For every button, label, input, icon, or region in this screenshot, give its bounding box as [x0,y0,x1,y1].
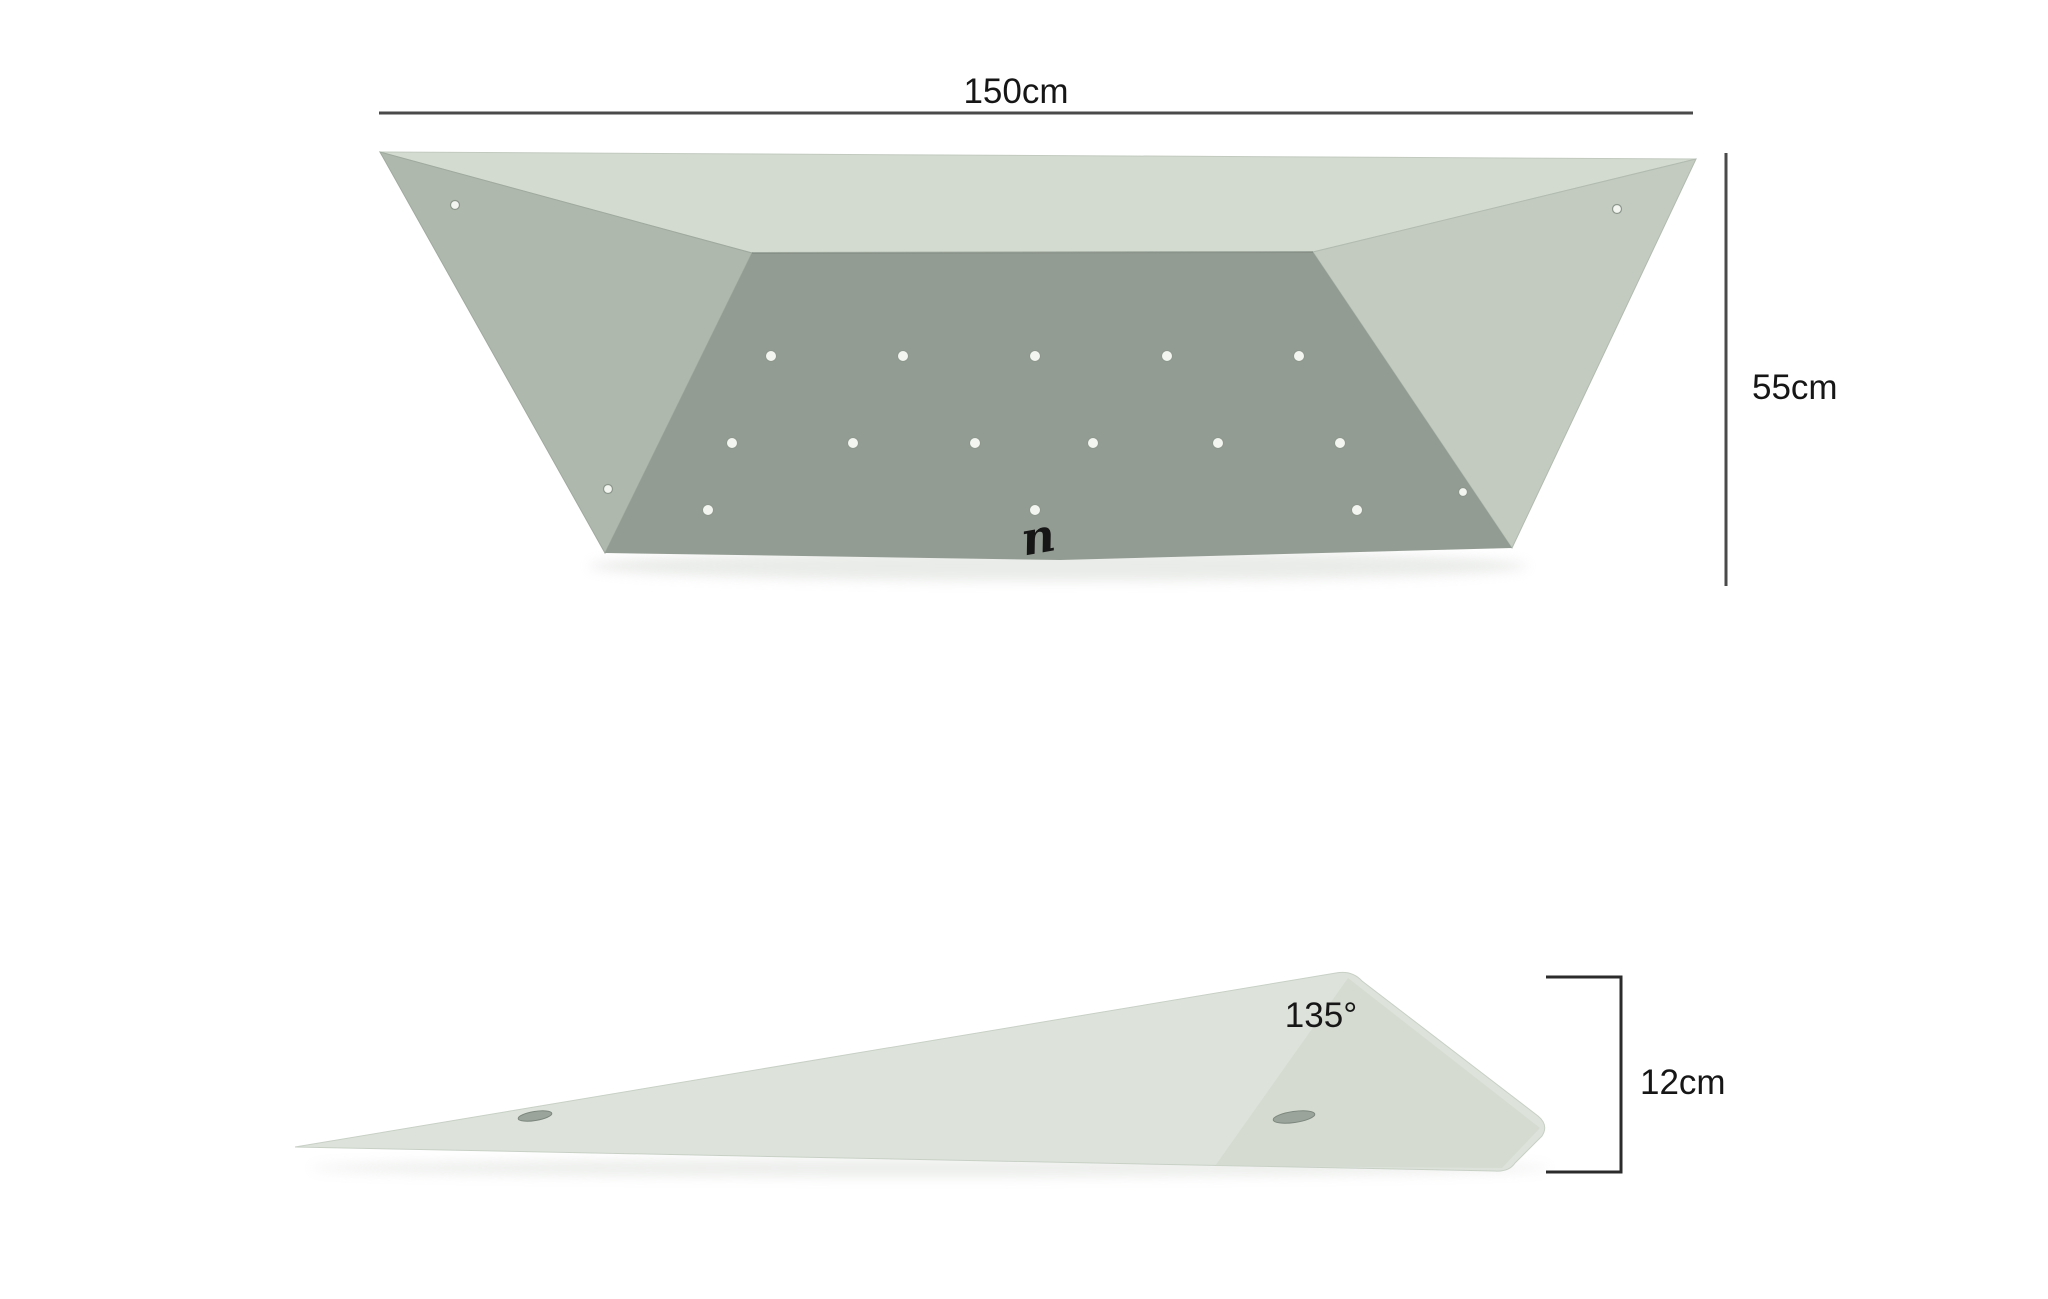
angle-label: 135° [1285,996,1357,1035]
top-view-group: n [380,152,1696,581]
bolt-hole [1030,351,1041,362]
bolt-hole [1213,438,1224,449]
width-dimension-label: 150cm [963,72,1068,111]
front-face-top-ridge [752,252,1313,253]
thickness-dimension-label: 12cm [1640,1063,1726,1102]
thickness-bracket [1546,977,1621,1172]
diagram-canvas: n 150cm 55cm 135° 12cm [0,0,2048,1299]
width-dimension: 150cm [379,72,1693,113]
bolt-hole [727,438,738,449]
bolt-hole [970,438,981,449]
bolt-hole [766,351,777,362]
bolt-hole [848,438,859,449]
bolt-hole [1162,351,1173,362]
bolt-hole [1352,505,1363,516]
height-dimension: 55cm [1726,153,1838,586]
dimension-diagram: n 150cm 55cm 135° 12cm [0,0,2048,1299]
bolt-hole [1613,205,1622,214]
bolt-hole [1335,438,1346,449]
bolt-hole [703,505,714,516]
height-dimension-label: 55cm [1752,368,1838,407]
bolt-hole [451,201,460,210]
thickness-dimension: 12cm [1546,977,1726,1172]
side-view-group: 135° [295,972,1550,1177]
bolt-hole [1459,488,1468,497]
bolt-hole [1088,438,1099,449]
bolt-hole [1294,351,1305,362]
bolt-hole [604,485,613,494]
bolt-hole [898,351,909,362]
